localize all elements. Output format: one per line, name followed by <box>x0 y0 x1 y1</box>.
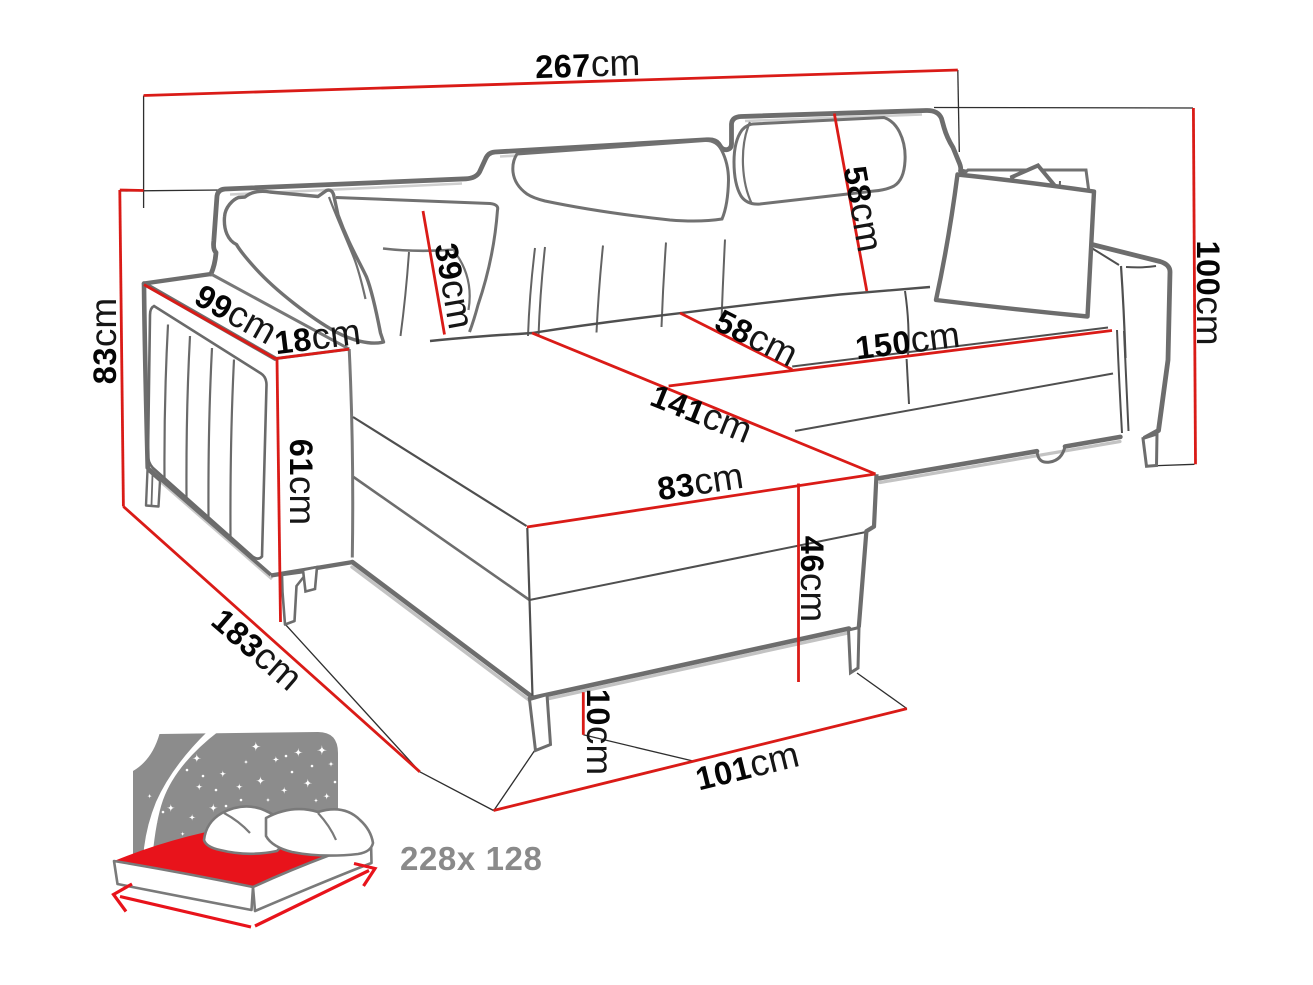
svg-text:61cm: 61cm <box>282 439 323 525</box>
svg-text:228x 128: 228x 128 <box>400 840 542 877</box>
svg-text:46cm: 46cm <box>793 536 834 622</box>
svg-text:100cm: 100cm <box>1189 240 1230 345</box>
svg-text:83cm: 83cm <box>83 298 124 384</box>
svg-text:267cm: 267cm <box>534 42 640 86</box>
svg-text:10cm: 10cm <box>579 689 620 775</box>
